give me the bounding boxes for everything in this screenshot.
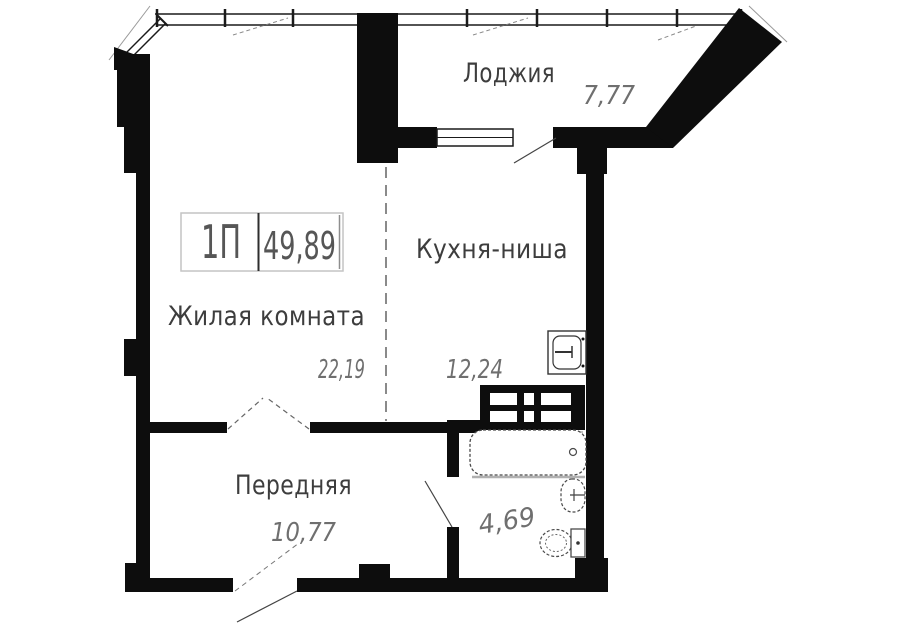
bathtub-icon — [470, 430, 586, 477]
toilet-bowl — [540, 530, 572, 557]
apartment-total-area: 49,89 — [263, 224, 336, 268]
vent-block — [480, 385, 585, 430]
loggia-glazing — [155, 9, 745, 40]
wall-segment — [577, 147, 607, 174]
room-label-kitchen: Кухня-ниша — [416, 234, 568, 265]
apartment-info-box: 1П 49,89 — [181, 213, 343, 271]
wall-segment — [150, 422, 227, 433]
wall-segment — [136, 173, 150, 339]
kitchen-sink-dot-top — [582, 338, 585, 341]
entrance-opening-mark — [235, 543, 299, 591]
toilet-tank-button — [576, 541, 580, 545]
wall-segment — [117, 54, 150, 127]
wall-segment — [124, 127, 150, 173]
wall-segment — [398, 127, 437, 148]
kitchen-window — [437, 129, 513, 146]
bathroom-sink-icon — [561, 479, 585, 512]
room-area-living: 22,19 — [318, 355, 365, 385]
floor-plan: 1П 49,89 Лоджия 7,77 Кухня-ниша 12,24 Жи… — [0, 0, 900, 623]
apartment-type-label: 1П — [201, 215, 241, 269]
bathroom-door-swing — [425, 481, 452, 527]
floor-plan-svg: 1П 49,89 Лоджия 7,77 Кухня-ниша 12,24 Жи… — [0, 0, 900, 623]
room-area-bathroom: 4,69 — [476, 502, 537, 541]
walls — [114, 8, 782, 592]
wall-segment — [150, 578, 233, 592]
hall-opening-marks — [228, 398, 309, 429]
wall-segment — [575, 558, 608, 592]
room-label-loggia: Лоджия — [463, 58, 555, 89]
wall-segment — [297, 578, 580, 592]
wall-segment — [447, 420, 459, 477]
wall-segment — [124, 339, 150, 376]
wall-segment — [586, 147, 604, 560]
door-swings — [228, 138, 556, 622]
room-label-hall: Передняя — [235, 470, 352, 501]
room-label-living: Жилая комната — [168, 301, 365, 332]
kitchen-sink-icon — [548, 331, 586, 374]
room-area-hall: 10,77 — [271, 518, 336, 548]
room-area-kitchen: 12,24 — [446, 355, 503, 385]
wall-segment — [310, 422, 447, 433]
wall-segment-diagonal — [646, 8, 782, 148]
room-area-loggia: 7,77 — [583, 81, 635, 111]
wall-segment — [125, 563, 150, 592]
wall-segment — [447, 527, 459, 578]
bathtub-outline — [470, 430, 586, 475]
wall-segment — [136, 376, 150, 563]
balcony-door-swing — [514, 138, 556, 163]
wall-segment — [357, 13, 398, 163]
entrance-door-swing — [237, 591, 297, 622]
window-opening-marks — [233, 18, 696, 40]
toilet-icon — [540, 529, 585, 557]
wall-segment — [359, 564, 390, 579]
kitchen-sink-dot-bottom — [582, 365, 585, 368]
